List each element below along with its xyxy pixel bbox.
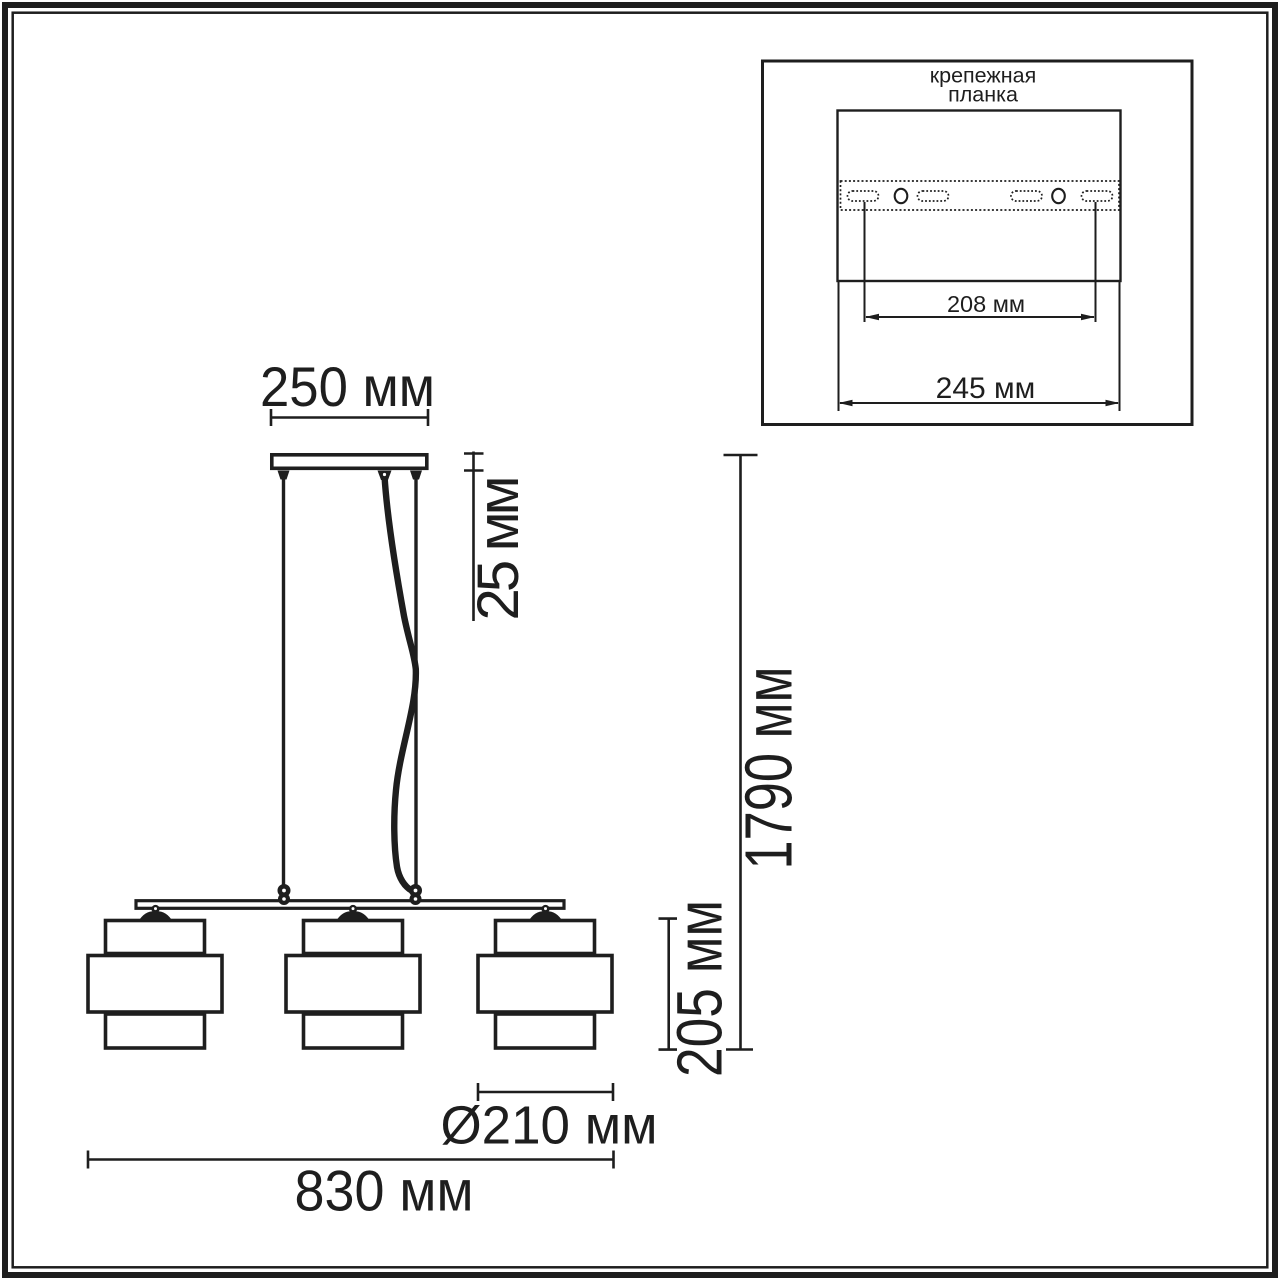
svg-text:25 мм: 25 мм [466,476,531,621]
svg-text:205 мм: 205 мм [664,900,736,1077]
svg-text:830 мм: 830 мм [295,1160,474,1224]
svg-text:планка: планка [948,83,1018,107]
svg-text:250 мм: 250 мм [260,356,435,418]
svg-text:245 мм: 245 мм [936,372,1036,405]
svg-text:Ø210 мм: Ø210 мм [441,1096,658,1156]
svg-text:208 мм: 208 мм [947,291,1025,317]
svg-text:1790 мм: 1790 мм [732,667,807,870]
